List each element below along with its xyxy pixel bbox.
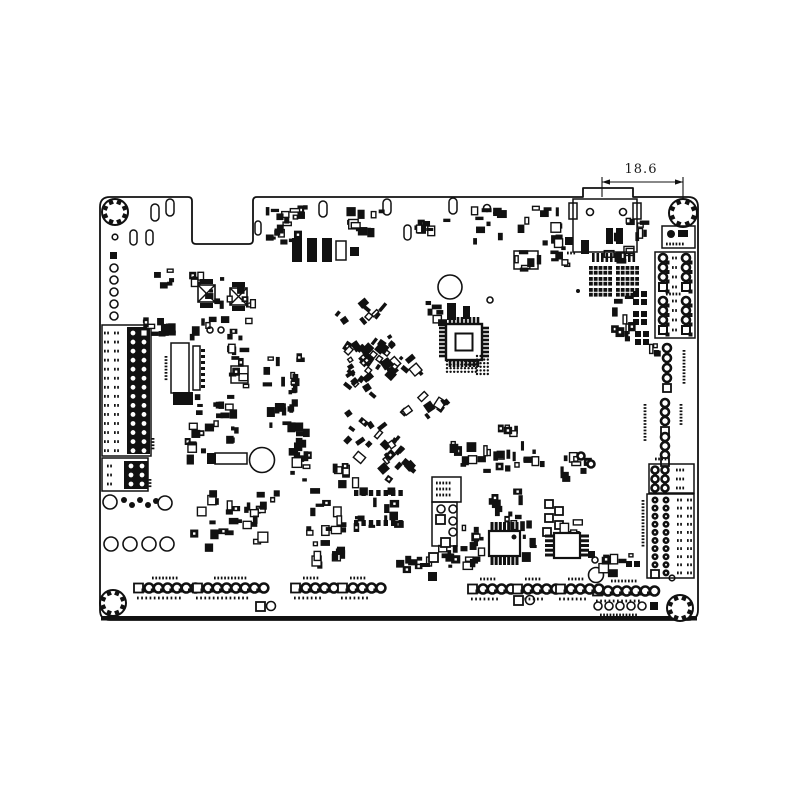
smd-pad [173,392,193,405]
slot-cutout [255,221,261,235]
square-pad [256,602,265,611]
smd-pad [634,561,640,567]
smd-pad [626,561,632,567]
mounting-hole [669,199,697,227]
through-hole-pad [663,344,671,352]
soic-ic-footprint [545,533,589,558]
through-hole-pad [663,354,671,362]
through-hole-pad [662,485,669,492]
board-edge [101,616,697,621]
through-hole-pad [652,476,659,483]
silkscreen-microtext [149,479,152,487]
smd-pad [307,238,317,262]
pad-dot [121,497,127,503]
slot-cutout [130,230,137,245]
pad-dot [576,289,580,293]
through-hole-pad [652,467,659,474]
dimension-label: 18.6 [612,162,670,177]
through-hole-pad [661,417,669,425]
square-pad [651,570,659,578]
smd-pad [110,252,117,259]
smd-pad [565,237,573,245]
through-hole-pad [661,408,669,416]
smd-pad [292,238,302,262]
mounting-hole [667,595,693,621]
pad-dot [129,502,135,508]
smd-pad [616,228,623,244]
through-hole-pad [662,467,669,474]
square-pad [545,500,553,508]
smd-pad [581,240,589,254]
through-hole-pad [588,461,595,468]
smd-pad [420,563,430,567]
through-hole-pad [661,433,669,441]
through-hole-pad [662,476,669,483]
through-hole-pad [663,374,671,382]
slot-cutout [166,199,174,216]
mounting-hole [102,199,128,225]
square-pad [555,507,563,515]
pad-dot [153,498,159,504]
smd-pad [322,238,332,262]
slot-cutout [146,230,153,245]
slot-cutout [449,198,457,214]
pin-header [124,461,148,489]
square-pad [429,553,438,562]
silkscreen-microtext [567,252,575,255]
through-hole-pad [663,364,671,372]
mounting-hole [100,590,126,616]
through-hole-pad [578,453,585,460]
smd-pad [428,572,437,581]
pad-dot [667,230,675,238]
smd-pad [678,230,688,237]
smd-pad [606,228,613,244]
smd-pad [650,602,658,610]
pin-header [127,327,150,454]
slot-cutout [151,204,159,221]
smd-pad [207,453,216,464]
square-pad [436,515,445,524]
slot-cutout [404,225,411,240]
smd-pad [350,247,359,256]
square-pad [514,596,523,605]
through-hole-pad [652,485,659,492]
pad-dot [512,535,517,540]
square-pad [441,538,450,547]
square-pad [663,384,671,392]
pcb-board [0,0,800,800]
pcb-assembly-drawing: 18.6 [0,0,800,800]
pad-dot [137,497,143,503]
slot-cutout [319,201,327,217]
through-hole-pad [661,399,669,407]
silkscreen-microtext [642,500,645,547]
through-hole-pad [661,442,669,450]
square-pad [545,514,553,522]
pad-dot [145,502,151,508]
